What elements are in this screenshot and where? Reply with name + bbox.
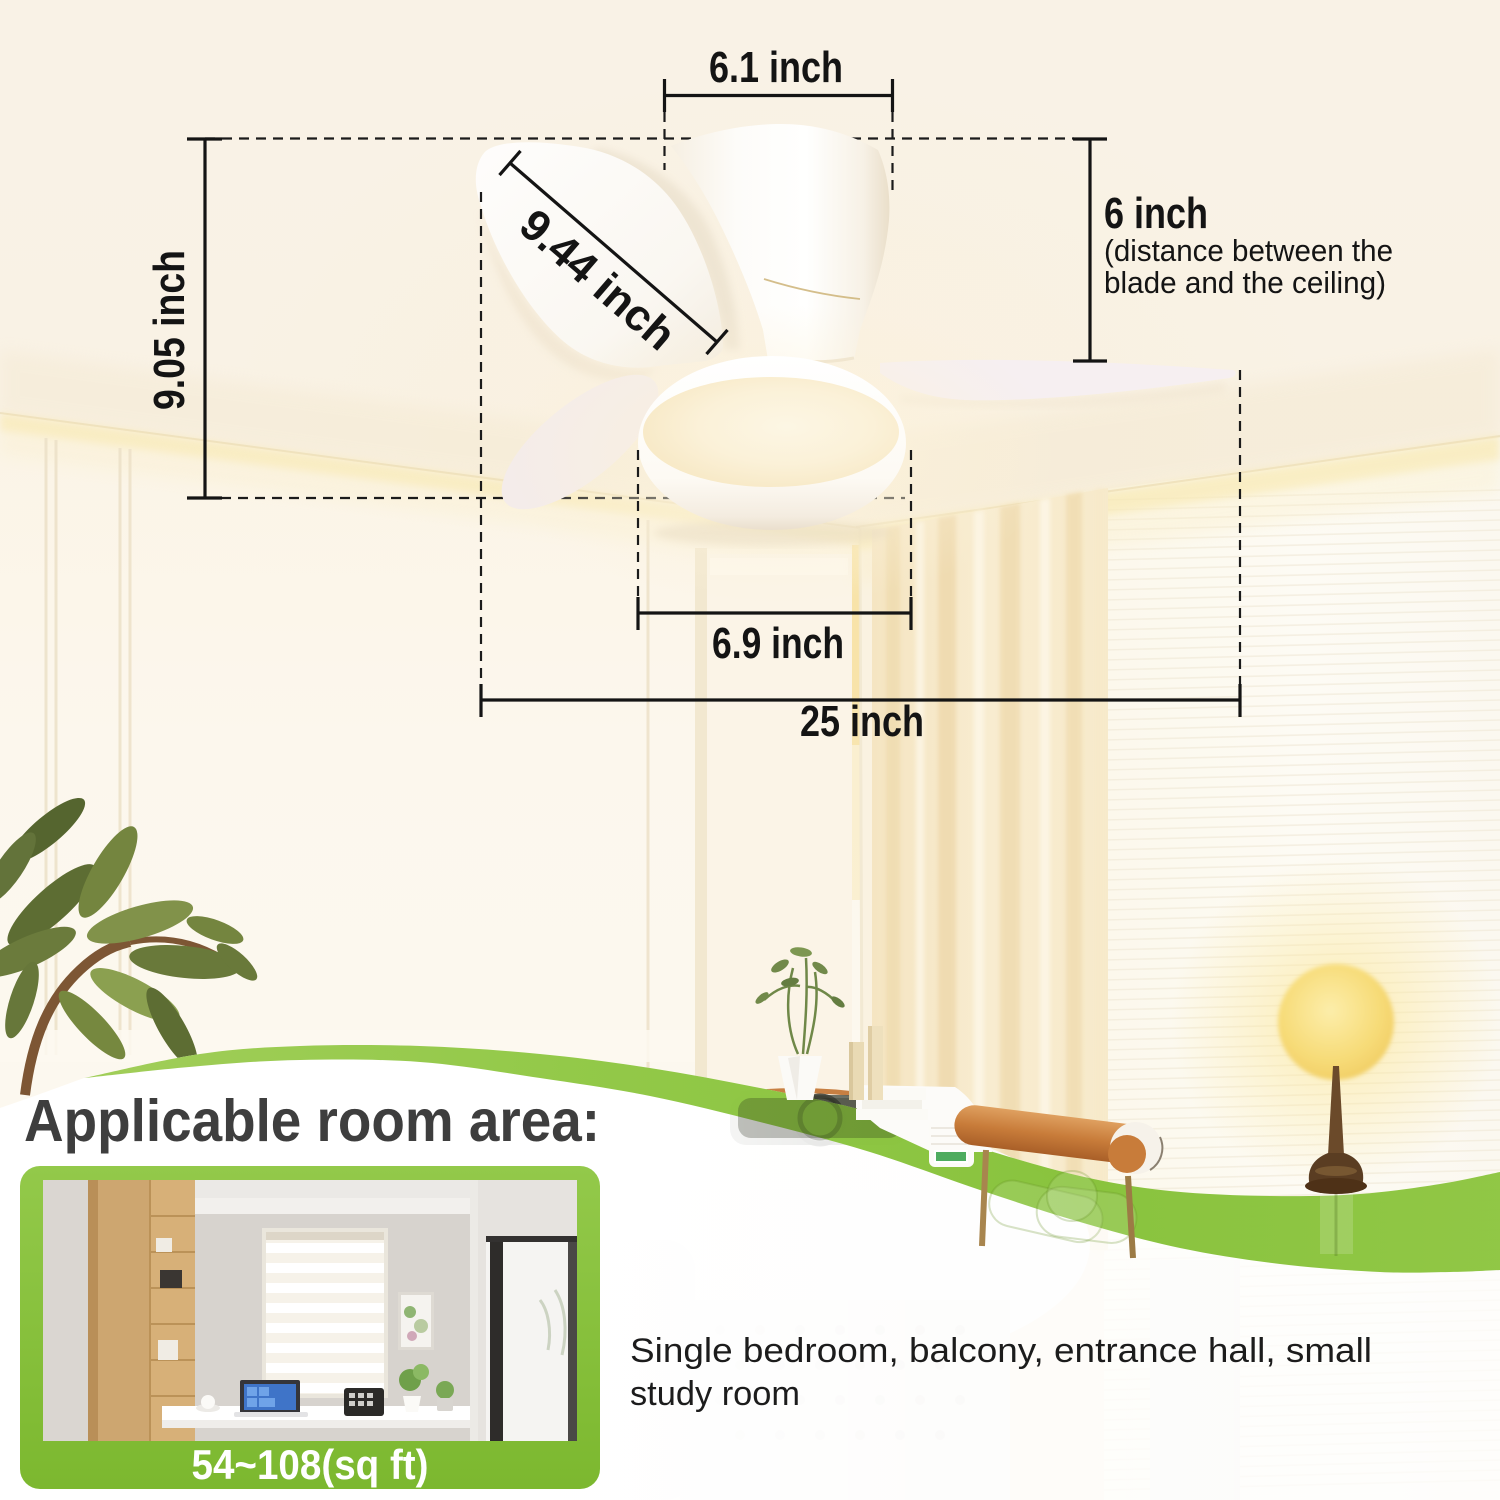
svg-text:blade and the ceiling): blade and the ceiling) bbox=[1104, 265, 1386, 300]
svg-text:Single bedroom, balcony, entra: Single bedroom, balcony, entrance hall, … bbox=[630, 1332, 1372, 1370]
svg-text:6.1 inch: 6.1 inch bbox=[709, 43, 843, 92]
svg-text:Applicable room area:: Applicable room area: bbox=[24, 1088, 600, 1154]
svg-text:6 inch: 6 inch bbox=[1104, 189, 1208, 238]
svg-text:study room: study room bbox=[630, 1375, 800, 1413]
svg-text:(distance between the: (distance between the bbox=[1104, 233, 1393, 268]
svg-text:9.05 inch: 9.05 inch bbox=[145, 250, 194, 410]
svg-text:6.9 inch: 6.9 inch bbox=[712, 619, 844, 668]
svg-text:25 inch: 25 inch bbox=[800, 697, 924, 746]
svg-text:54~108(sq ft): 54~108(sq ft) bbox=[192, 1441, 429, 1488]
